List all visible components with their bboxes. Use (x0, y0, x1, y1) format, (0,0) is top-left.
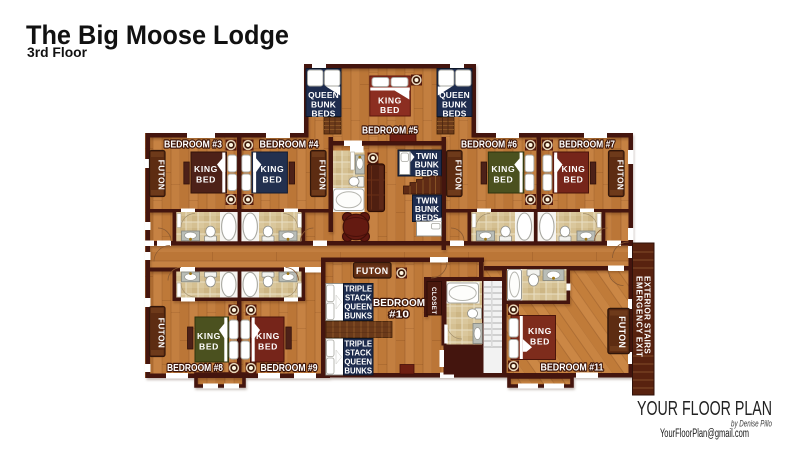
svg-text:EMERGENCY EXIT: EMERGENCY EXIT (635, 276, 644, 358)
svg-text:FUTON: FUTON (318, 160, 328, 190)
svg-text:BEDS: BEDS (442, 109, 466, 119)
svg-text:FUTON: FUTON (617, 316, 627, 348)
svg-text:BEDROOM #9: BEDROOM #9 (261, 363, 318, 374)
svg-text:KING: KING (260, 164, 284, 174)
svg-text:FUTON: FUTON (356, 266, 389, 276)
svg-text:BEDROOM #7: BEDROOM #7 (559, 140, 615, 151)
svg-text:KING: KING (256, 331, 280, 341)
svg-text:YourFloorPlan@gmail.com: YourFloorPlan@gmail.com (660, 428, 749, 440)
svg-text:QUEEN: QUEEN (308, 90, 339, 100)
svg-text:BED: BED (380, 105, 400, 115)
svg-text:FUTON: FUTON (157, 318, 167, 348)
svg-text:BEDROOM #5: BEDROOM #5 (362, 126, 418, 137)
svg-text:STACK: STACK (345, 294, 372, 303)
svg-text:BED: BED (196, 175, 216, 185)
svg-text:TRIPLE: TRIPLE (344, 340, 372, 349)
svg-text:KING: KING (528, 326, 552, 336)
svg-text:BED: BED (262, 175, 282, 185)
svg-text:YOUR FLOOR PLAN: YOUR FLOOR PLAN (637, 397, 772, 420)
svg-text:KING: KING (194, 164, 218, 174)
svg-text:EXTERIOR STAIRS: EXTERIOR STAIRS (643, 276, 652, 354)
svg-text:BED: BED (530, 337, 550, 347)
svg-text:BEDROOM #8: BEDROOM #8 (167, 363, 223, 374)
svg-text:BED: BED (493, 175, 513, 185)
svg-text:BEDROOM #6: BEDROOM #6 (461, 140, 517, 151)
svg-text:QUEEN: QUEEN (344, 303, 372, 312)
svg-text:KING: KING (491, 164, 515, 174)
svg-text:BED: BED (258, 342, 278, 352)
svg-text:by Denise Pillo: by Denise Pillo (731, 419, 772, 429)
svg-text:BEDROOM #11: BEDROOM #11 (541, 363, 604, 374)
svg-text:BED: BED (199, 342, 219, 352)
svg-text:FUTON: FUTON (616, 160, 626, 190)
svg-text:BEDROOM: BEDROOM (373, 298, 425, 309)
svg-text:BUNKS: BUNKS (344, 312, 372, 321)
svg-text:QUEEN: QUEEN (344, 358, 372, 367)
svg-text:TRIPLE: TRIPLE (344, 285, 372, 294)
svg-text:KING: KING (562, 164, 586, 174)
svg-text:QUEEN: QUEEN (439, 90, 470, 100)
svg-text:BEDS: BEDS (311, 109, 335, 119)
svg-text:FUTON: FUTON (454, 160, 464, 190)
svg-text:BUNKS: BUNKS (344, 367, 372, 376)
svg-text:FUTON: FUTON (157, 160, 167, 190)
svg-text:KING: KING (197, 331, 221, 341)
svg-text:CLOSET: CLOSET (430, 287, 437, 315)
svg-text:BEDROOM #3: BEDROOM #3 (164, 140, 222, 151)
svg-text:BEDROOM #4: BEDROOM #4 (260, 140, 320, 151)
svg-text:3rd Floor: 3rd Floor (27, 45, 88, 60)
svg-text:#10: #10 (389, 310, 410, 321)
svg-text:STACK: STACK (345, 349, 372, 358)
svg-text:BED: BED (564, 175, 584, 185)
